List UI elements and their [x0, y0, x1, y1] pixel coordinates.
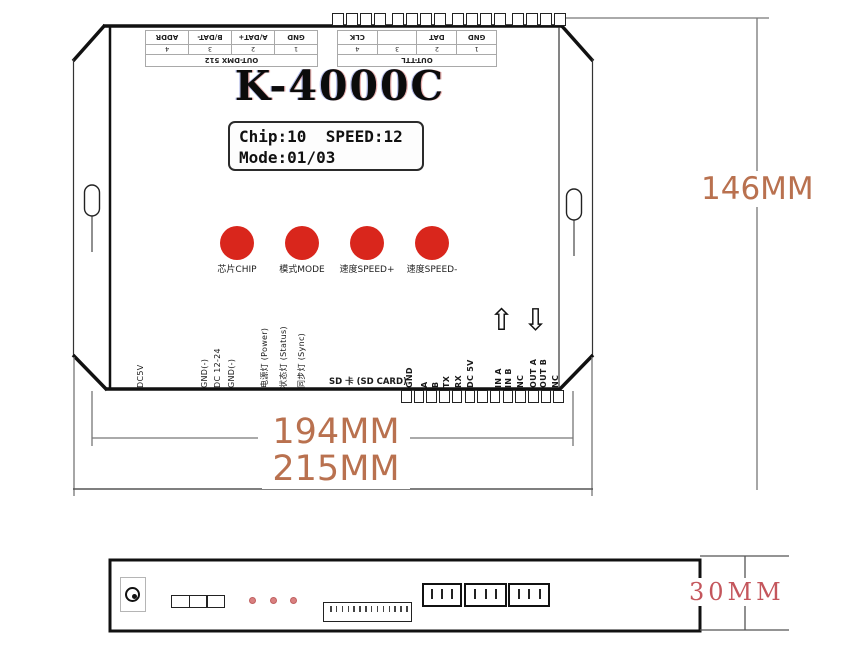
top-connector-pin — [466, 13, 478, 26]
pin-label-in-b: IN B — [504, 368, 513, 388]
top-connector-pin — [360, 13, 372, 26]
pin-label-rx: RX — [454, 375, 463, 388]
ttl-pin3-num: 3 — [377, 45, 417, 55]
mode-button[interactable] — [285, 226, 319, 260]
out-dmx512-port-table: OUT-DMX 512 1 2 3 4 GND A/DAT+ B/DAT- AD… — [145, 30, 318, 67]
bottom-connector-pin — [541, 390, 552, 403]
ttl-pin2-num: 2 — [417, 45, 457, 55]
top-connector-pin — [494, 13, 506, 26]
plate-bottomleft-diagonal — [73, 355, 107, 390]
out-ttl-label: OUT-TTL — [338, 55, 497, 67]
sync-led — [290, 597, 297, 604]
dc-jack — [125, 587, 140, 602]
top-connector-pin — [452, 13, 464, 26]
status-led — [270, 597, 277, 604]
dmx-pin4-num: 4 — [146, 45, 189, 55]
terminal-cell — [206, 595, 225, 608]
top-connector-pin — [346, 13, 358, 26]
power-led — [249, 597, 256, 604]
pin-label-b: B — [431, 382, 440, 388]
controller-spec-diagram: K-4000C Chip:10 SPEED:12 Mode:01/03 OUT-… — [0, 0, 866, 660]
dc-jack-pin — [132, 594, 137, 599]
output-connector-pin — [485, 589, 487, 599]
sd-slot-pin-tick — [400, 606, 402, 612]
pin-label-a: A — [420, 382, 429, 389]
pin-label-out-a: OUT A — [529, 359, 538, 388]
output-connector-pin — [528, 589, 530, 599]
sd-slot-pin-tick — [383, 606, 385, 612]
lcd-line1: Chip:10 SPEED:12 — [239, 126, 422, 147]
ttl-pin4-label: CLK — [338, 31, 378, 45]
ttl-pin4-num: 4 — [338, 45, 378, 55]
dimension-height: 146MM — [698, 171, 817, 207]
top-connector-pin — [420, 13, 432, 26]
top-connector-pin — [554, 13, 566, 26]
pin-label-dc5v-right: DC 5V — [466, 359, 475, 388]
sd-slot-pin-tick — [359, 606, 361, 612]
top-connector-pin — [512, 13, 524, 26]
out-ttl-port-table: OUT-TTL 1 2 3 4 GND DAT CLK — [337, 30, 497, 67]
sd-slot-pin-tick — [406, 606, 408, 612]
top-connector-pin — [480, 13, 492, 26]
output-connector-pin — [441, 589, 443, 599]
pin-label-dc5v: DC5V — [136, 364, 145, 388]
lcd-line2: Mode:01/03 — [239, 147, 422, 168]
right-mount-slot — [567, 189, 582, 220]
plate-topright-diagonal — [561, 25, 593, 61]
pin-label-gnd-2: GND(-) — [227, 359, 236, 388]
output-connector-pin — [474, 589, 476, 599]
pin-label-out-b: OUT B — [539, 359, 548, 388]
sd-slot-pin-tick — [353, 606, 355, 612]
pin-label-gnd-1: GND(-) — [200, 359, 209, 388]
pin-label-nc-1: NC — [516, 375, 525, 388]
sd-card-slot — [323, 602, 412, 622]
sd-card-label: SD 卡 (SD CARD) — [329, 375, 407, 387]
lcd-display: Chip:10 SPEED:12 Mode:01/03 — [228, 121, 424, 171]
top-connector-pin — [406, 13, 418, 26]
output-connector-pin — [431, 589, 433, 599]
sd-slot-pin-tick — [377, 606, 379, 612]
bottom-connector-pin — [452, 390, 463, 403]
plate-topleft-diagonal — [73, 25, 105, 61]
speed-plus-button[interactable] — [350, 226, 384, 260]
sd-slot-pin-tick — [342, 606, 344, 612]
plate-bottomright-diagonal — [559, 355, 593, 390]
ttl-pin3-label — [377, 31, 417, 45]
chip-button[interactable] — [220, 226, 254, 260]
bottom-connector-pin — [515, 390, 526, 403]
dmx-pin3-num: 3 — [189, 45, 232, 55]
top-connector-pin — [526, 13, 538, 26]
speed-minus-button-label: 速度SPEED- — [397, 262, 467, 275]
power-terminal-block — [171, 595, 225, 608]
speed-plus-button-label: 速度SPEED+ — [332, 262, 402, 275]
top-connector-pin — [374, 13, 386, 26]
ttl-pin1-num: 1 — [457, 45, 497, 55]
terminal-cell — [189, 595, 208, 608]
power-led-label: 电源灯 (Power) — [259, 328, 270, 388]
out-dmx512-label: OUT-DMX 512 — [146, 55, 318, 67]
model-name: K-4000C — [200, 62, 480, 110]
sd-slot-pin-tick — [348, 606, 350, 612]
bottom-connector-pin — [490, 390, 501, 403]
sd-slot-pin-tick — [365, 606, 367, 612]
bottom-connector-pin — [528, 390, 539, 403]
dimension-total-width: 215MM — [262, 449, 410, 489]
bottom-connector-pin — [477, 390, 488, 403]
sd-slot-pin-tick — [371, 606, 373, 612]
pin-label-tx: TX — [442, 376, 451, 388]
output-arrow-icon: ⇩ — [523, 306, 548, 336]
dmx-pin2-num: 2 — [232, 45, 275, 55]
pin-label-dc12-24: DC 12-24 — [213, 348, 222, 388]
bottom-connector-pin — [439, 390, 450, 403]
bottom-connector-pin — [503, 390, 514, 403]
bottom-connector-pin — [426, 390, 437, 403]
sd-slot-pin-tick — [394, 606, 396, 612]
top-connector-pin — [392, 13, 404, 26]
chip-button-label: 芯片CHIP — [202, 262, 272, 275]
ttl-pin2-label: DAT — [417, 31, 457, 45]
mode-button-label: 模式MODE — [267, 262, 337, 275]
dmx-pin1-num: 1 — [275, 45, 318, 55]
top-connector-pin — [434, 13, 446, 26]
left-mount-slot — [85, 185, 100, 216]
dmx-pin4-label: ADDR — [146, 31, 189, 45]
output-connector-pin — [518, 589, 520, 599]
output-connector-pin — [451, 589, 453, 599]
dimension-mount-width: 194MM — [262, 412, 410, 452]
bottom-connector-pin — [465, 390, 476, 403]
pin-label-in-a: IN A — [494, 368, 503, 388]
dmx-pin2-label: A/DAT+ — [232, 31, 275, 45]
dimension-depth: 30MM — [686, 578, 788, 606]
speed-minus-button[interactable] — [415, 226, 449, 260]
top-connector-pin — [540, 13, 552, 26]
pin-label-gnd: GND — [405, 367, 414, 388]
pin-label-nc-2: NC — [551, 375, 560, 388]
dmx-pin3-label: B/DAT- — [189, 31, 232, 45]
sd-slot-pin-tick — [389, 606, 391, 612]
bottom-connector-pin — [414, 390, 425, 403]
bottom-connector-pin — [553, 390, 564, 403]
status-led-label: 状态灯 (Status) — [278, 326, 289, 388]
sd-slot-pin-tick — [330, 606, 332, 612]
bottom-connector-pin — [401, 390, 412, 403]
ttl-pin1-label: GND — [457, 31, 497, 45]
output-connector-pin — [495, 589, 497, 599]
sd-slot-pin-tick — [336, 606, 338, 612]
top-connector-pin — [332, 13, 344, 26]
sync-led-label: 同步灯 (Sync) — [296, 333, 307, 388]
output-connector-pin — [539, 589, 541, 599]
dmx-pin1-label: GND — [275, 31, 318, 45]
input-arrow-icon: ⇧ — [489, 306, 514, 336]
terminal-cell — [171, 595, 190, 608]
